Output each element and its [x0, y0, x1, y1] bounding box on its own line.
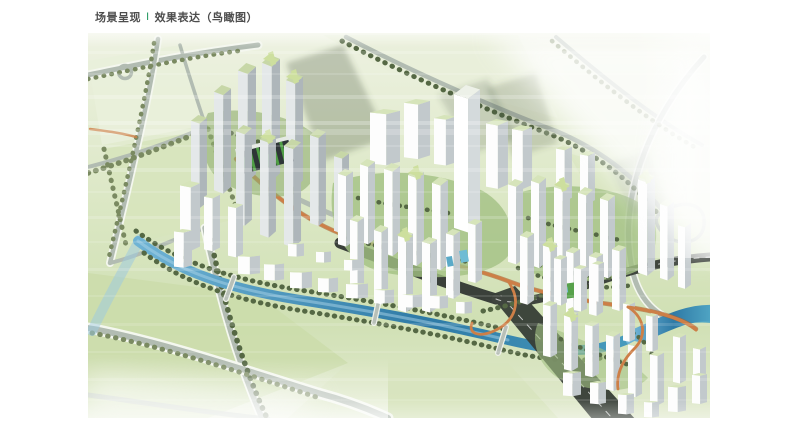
slide-page: 场景呈现I效果表达（鸟瞰图）: [0, 0, 800, 440]
aerial-rendering: [88, 33, 710, 418]
title-left: 场景呈现: [95, 9, 141, 25]
aerial-rendering-figure: [88, 33, 710, 418]
title-separator: I: [147, 11, 149, 23]
title-right: 效果表达（鸟瞰图）: [155, 9, 259, 25]
page-title: 场景呈现I效果表达（鸟瞰图）: [95, 8, 258, 26]
